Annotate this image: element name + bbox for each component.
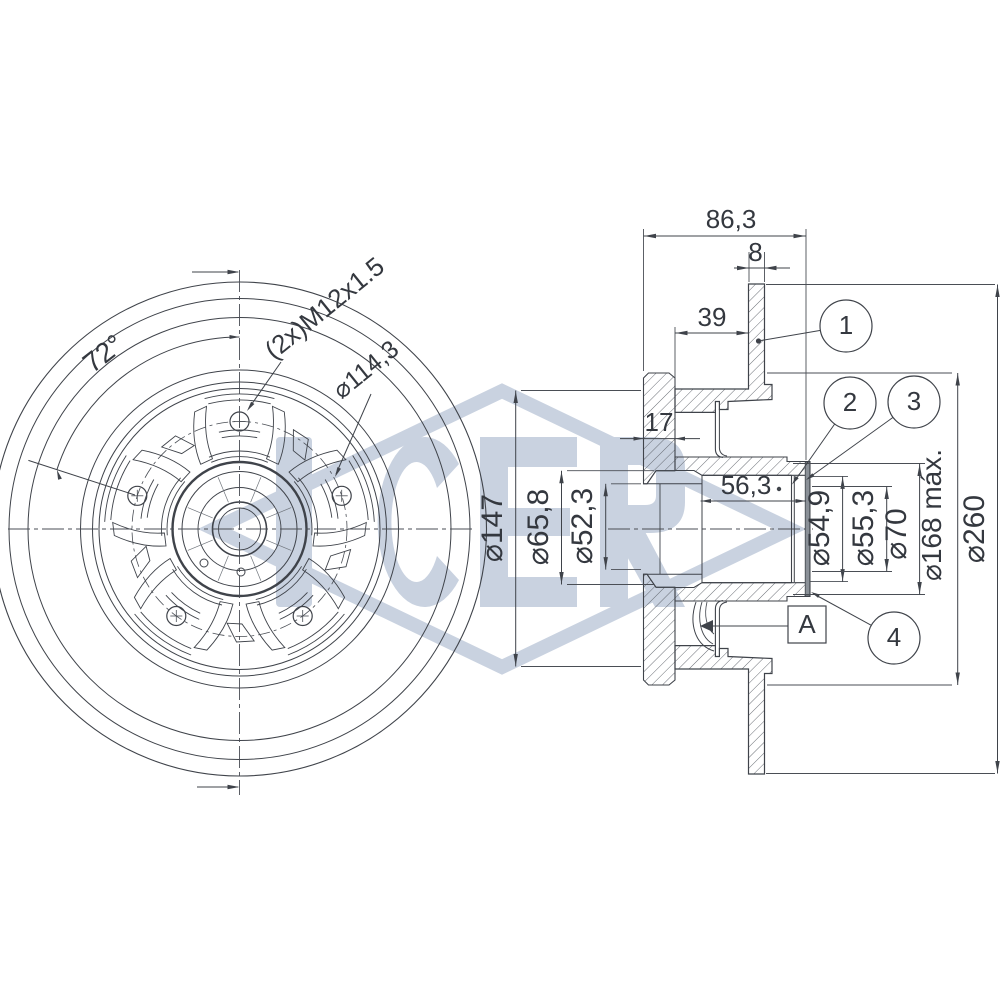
svg-text:2: 2 (843, 387, 857, 417)
svg-text:⌀260: ⌀260 (958, 495, 991, 563)
svg-text:3: 3 (907, 386, 921, 416)
svg-text:⌀52,3: ⌀52,3 (566, 488, 599, 564)
svg-text:⌀65,8: ⌀65,8 (522, 489, 555, 565)
svg-text:⌀54,9: ⌀54,9 (803, 490, 836, 566)
svg-text:8: 8 (748, 237, 762, 267)
svg-text:56,3: 56,3 (721, 470, 772, 500)
svg-text:⌀147: ⌀147 (476, 494, 509, 562)
svg-text:39: 39 (698, 302, 727, 332)
svg-text:17: 17 (645, 407, 674, 437)
svg-text:⌀55,3: ⌀55,3 (847, 490, 880, 566)
svg-text:86,3: 86,3 (706, 204, 757, 234)
svg-text:A: A (798, 609, 816, 639)
svg-text:4: 4 (887, 622, 901, 652)
svg-text:1: 1 (839, 310, 853, 340)
svg-text:⌀168 máx.: ⌀168 máx. (916, 449, 947, 581)
svg-text:⌀70: ⌀70 (880, 508, 913, 559)
